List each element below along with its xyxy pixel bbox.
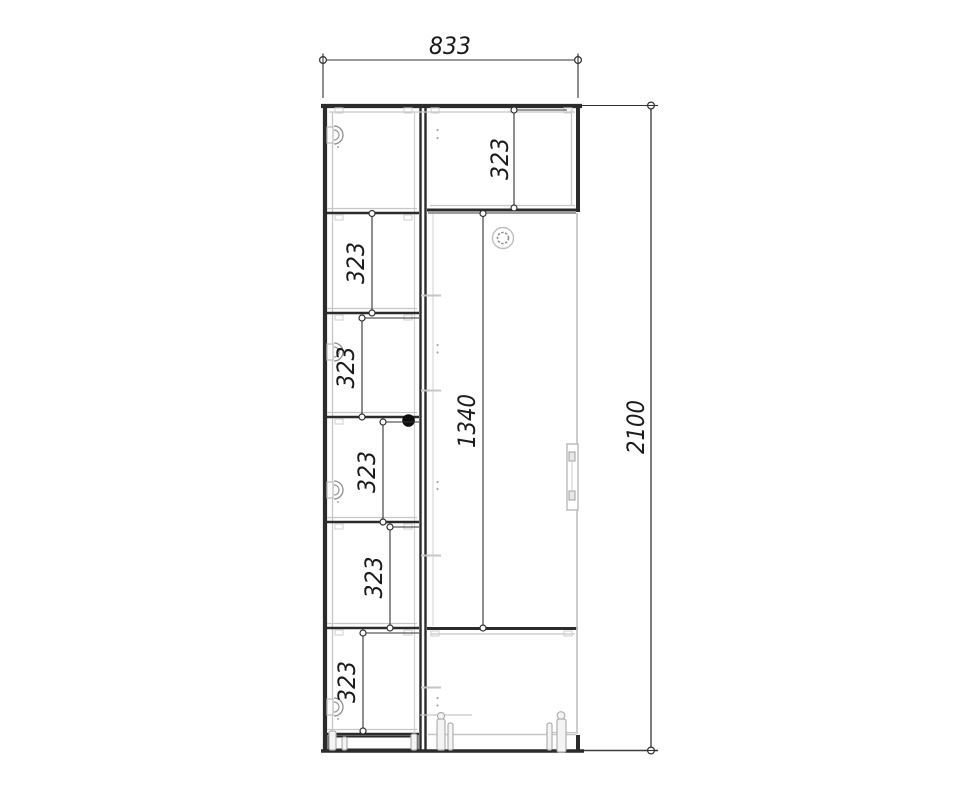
foot-icon (411, 734, 417, 750)
foot-icon (342, 737, 347, 750)
door-dimension-label: 1340 (453, 394, 481, 448)
left-shelf-dimension-5: 323 (333, 630, 419, 734)
shelf-dimension-label: 323 (333, 661, 361, 703)
overall-width-label: 833 (429, 32, 471, 60)
left-shelf-dimension-4: 323 (360, 524, 419, 631)
shelf-dimension-label: 323 (342, 242, 370, 284)
dot-marker (402, 414, 415, 427)
hinge-icon (327, 481, 343, 503)
handle-icon (567, 444, 578, 510)
overall-height-label: 2100 (622, 400, 650, 454)
overall-height-dimension: 2100 (582, 102, 658, 754)
top-right-shelf-dimension: 323 (486, 107, 567, 211)
foot-icon (547, 723, 552, 750)
foot-icon (329, 731, 336, 750)
left-shelf-dimension-1: 323 (342, 211, 375, 317)
foot-icon (437, 719, 445, 750)
overall-width-dimension: 833 (320, 32, 582, 98)
shelf-dimension-label: 323 (486, 138, 514, 180)
wardrobe-technical-drawing: 833 2100 323 1340 323 323 (0, 0, 978, 800)
drawing-canvas: 833 2100 323 1340 323 323 (0, 0, 978, 800)
right-section (427, 206, 578, 735)
shelf-dimension-label: 323 (332, 347, 360, 389)
door-height-dimension: 1340 (453, 211, 486, 632)
inner-edge-lines (329, 110, 575, 732)
left-shelf-dimension-2: 323 (332, 315, 419, 420)
foot-icon (448, 723, 453, 750)
pin-hole-dots (436, 129, 438, 707)
hinge-icon (327, 126, 343, 148)
lock-icon (493, 228, 514, 249)
shelf-dimension-label: 323 (360, 557, 388, 599)
shelf-dimension-label: 323 (353, 451, 381, 493)
foot-icon (557, 719, 566, 752)
left-shelf-dimension-3: 323 (353, 419, 419, 525)
